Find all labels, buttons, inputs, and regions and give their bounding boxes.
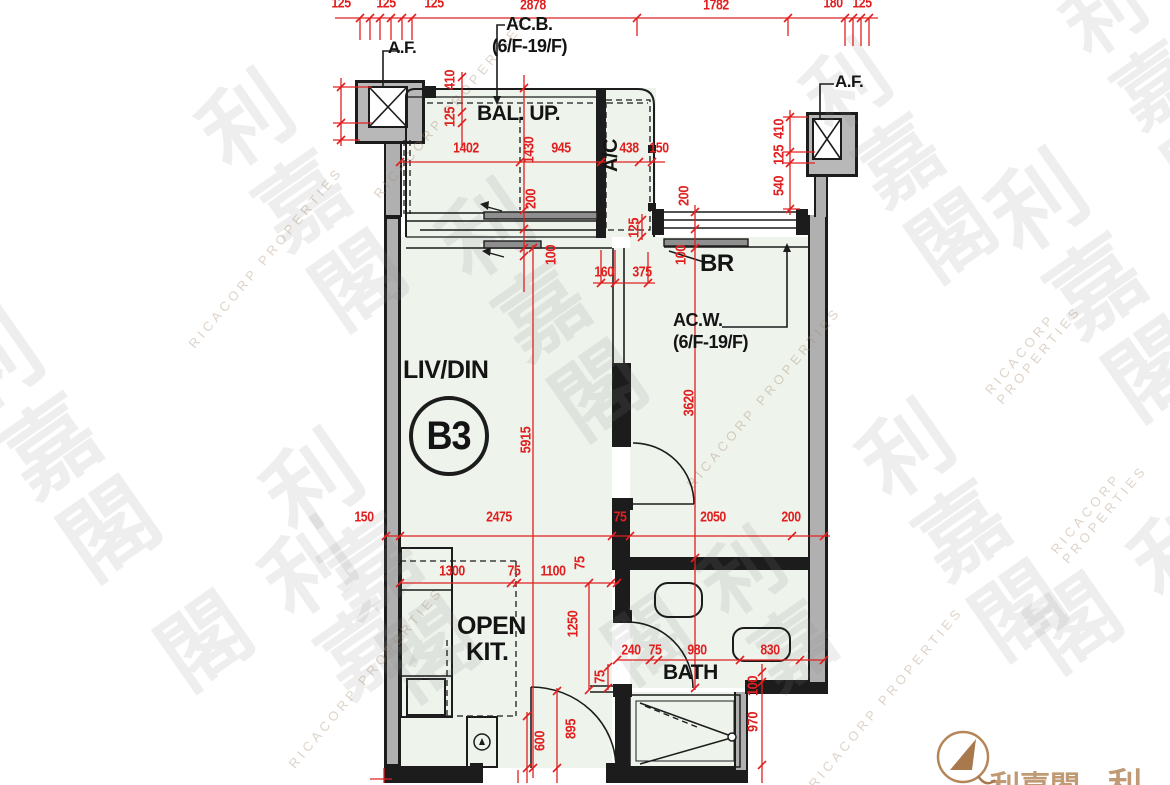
dim-label: 1782 (703, 0, 729, 14)
dim-label: 100 (673, 245, 690, 265)
dim-label: 2475 (486, 509, 512, 526)
dim-label: 150 (354, 509, 373, 526)
dim-label: 540 (771, 176, 788, 196)
dim-label: 125 (771, 145, 788, 165)
dim-label: 75 (572, 556, 589, 569)
dim-label: 830 (760, 642, 779, 659)
dim-label: 125 (376, 0, 395, 12)
dim-label: 3620 (681, 390, 698, 417)
dim-label: 375 (632, 264, 651, 281)
dim-label: 75 (649, 642, 662, 659)
dim-label: 180 (823, 0, 842, 12)
dim-label: 100 (543, 245, 560, 265)
dimension-labels: 1251251252878178218012541012514021430945… (0, 0, 1170, 785)
dim-label: 1402 (453, 140, 479, 157)
dim-label: 895 (563, 719, 580, 739)
dim-label: 1430 (521, 137, 538, 164)
dim-label: 2050 (700, 509, 726, 526)
dim-label: 75 (614, 509, 627, 526)
dim-label: 1300 (439, 563, 465, 580)
dim-label: 980 (687, 642, 706, 659)
dim-label: 5915 (518, 427, 535, 454)
dim-label: 2878 (520, 0, 546, 14)
dim-label: 200 (676, 186, 693, 206)
dim-label: 75 (508, 563, 521, 580)
dim-label: 410 (442, 70, 459, 90)
dim-label: 125 (626, 218, 643, 238)
dim-label: 200 (523, 189, 540, 209)
dim-label: 125 (331, 0, 350, 12)
dim-label: 1100 (540, 563, 565, 580)
dim-label: 600 (532, 731, 549, 751)
dim-label: 438 (619, 140, 638, 157)
dim-label: 160 (594, 264, 613, 281)
dim-label: 1250 (565, 611, 582, 638)
dim-label: 125 (852, 0, 871, 12)
dim-label: 200 (781, 509, 800, 526)
dim-label: 125 (424, 0, 443, 12)
dim-label: 100 (745, 676, 762, 696)
dim-label: 125 (442, 107, 459, 127)
dim-label: 150 (649, 140, 668, 157)
floor-plan: 利嘉閣利嘉閣利嘉閣利嘉閣利嘉閣利嘉閣利嘉閣利嘉閣利嘉閣利嘉閣利嘉閣RICACOR… (0, 0, 1170, 785)
dim-label: 410 (771, 119, 788, 139)
dim-label: 970 (745, 712, 762, 732)
dim-label: 945 (551, 140, 570, 157)
dim-label: 240 (621, 642, 640, 659)
dim-label: 75 (592, 670, 609, 683)
